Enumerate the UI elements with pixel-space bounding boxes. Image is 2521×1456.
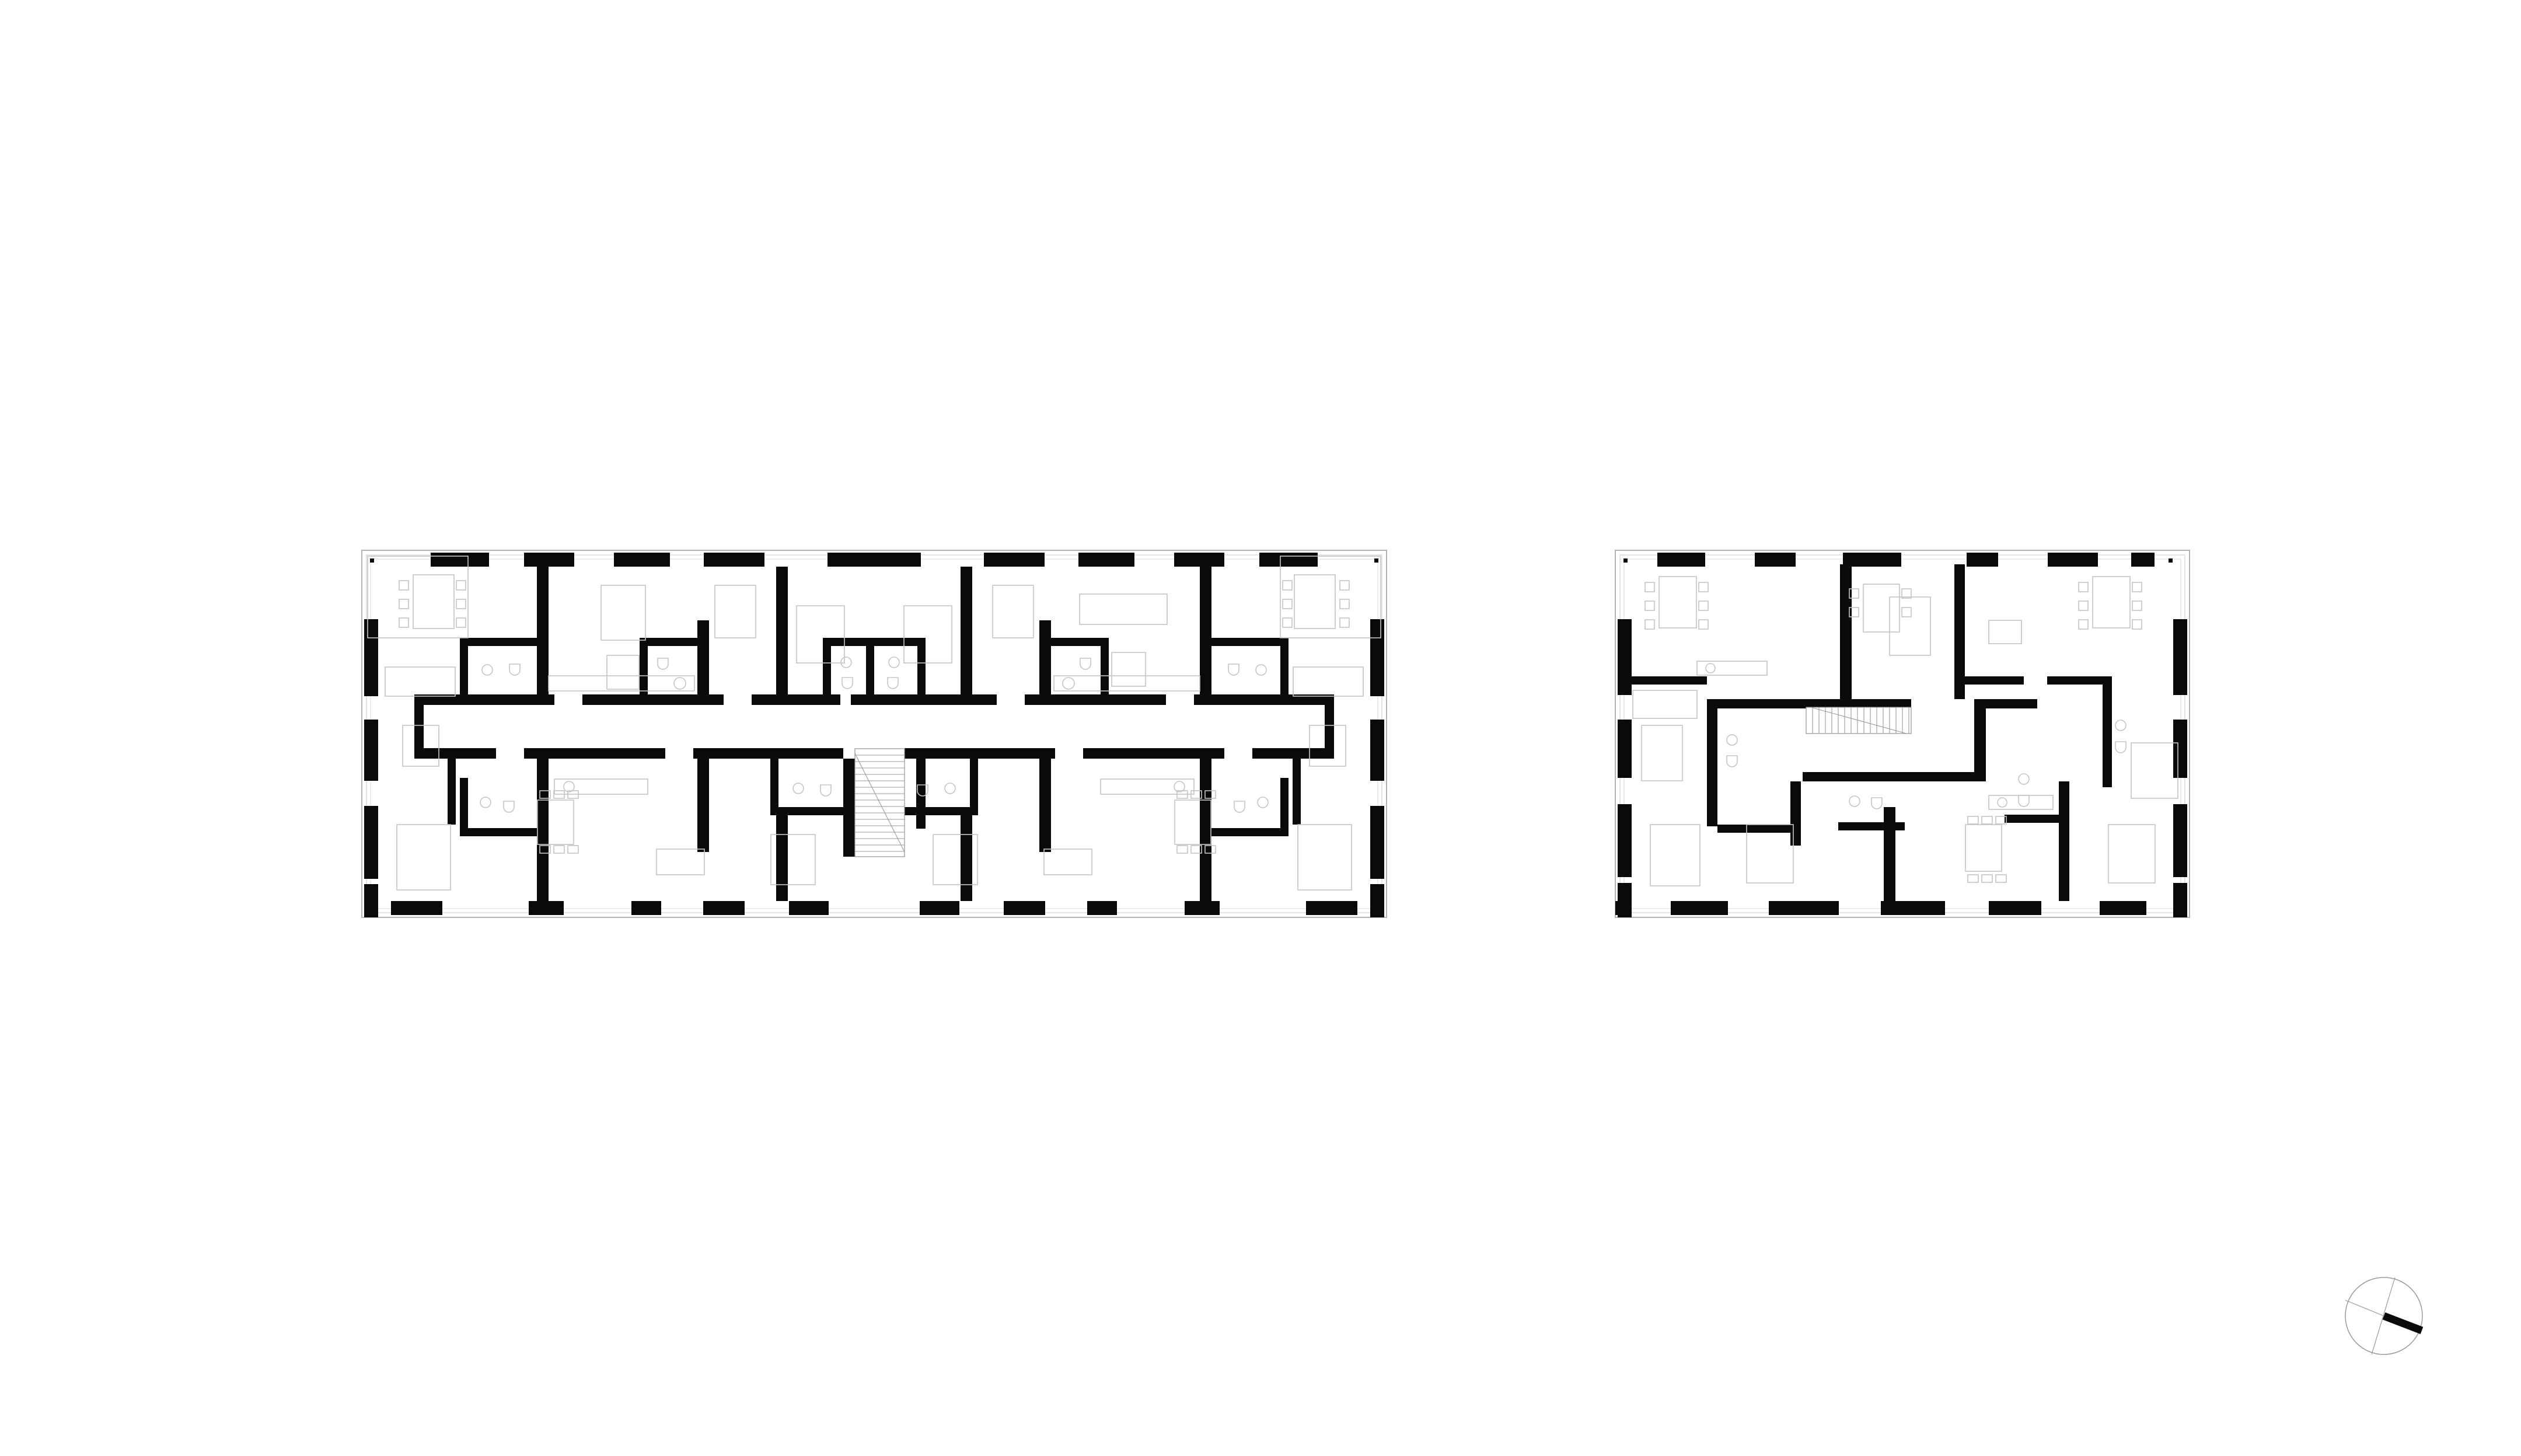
wall-segment [1101, 646, 1109, 694]
wall-segment [1974, 699, 1986, 781]
wall-segment [1840, 564, 1852, 699]
wall-segment [2005, 815, 2063, 823]
wall-segment [460, 638, 537, 646]
compass-tail-line [2345, 1300, 2384, 1316]
perimeter-pier [1671, 901, 1728, 915]
architectural-drawing-canvas [0, 0, 2521, 1456]
wall-segment [1211, 828, 1289, 836]
facade-outline [362, 550, 1387, 917]
wall-segment [1280, 778, 1289, 836]
wall-segment [524, 748, 665, 759]
staircase [1806, 707, 1911, 734]
perimeter-pier [1755, 553, 1796, 567]
wall-segment [460, 828, 537, 836]
wall-segment [1707, 708, 1717, 826]
north-pointer-icon [2384, 1316, 2422, 1331]
perimeter-pier [2173, 804, 2187, 877]
wall-segment [1717, 825, 1790, 833]
perimeter-pier [1174, 553, 1224, 567]
wall-segment [414, 694, 424, 759]
corner-marker-dot [2169, 558, 2173, 563]
perimeter-pier [1370, 884, 1384, 917]
corner-marker-dot [1374, 558, 1378, 563]
wall-segment [1293, 759, 1301, 825]
wall-segment [1790, 781, 1801, 846]
wall-segment [1039, 759, 1051, 852]
wall-segment [460, 778, 468, 836]
corner-marker-dot [1623, 558, 1628, 563]
perimeter-pier [984, 553, 1045, 567]
perimeter-pier [364, 884, 378, 917]
wall-segment [961, 567, 972, 694]
wall-segment [1252, 748, 1334, 759]
perimeter-pier [1657, 553, 1705, 567]
perimeter-pier [827, 553, 921, 567]
wall-segment [1977, 699, 2037, 708]
wall-segment [1200, 759, 1211, 901]
perimeter-pier [631, 901, 661, 915]
perimeter-pier [1078, 553, 1134, 567]
wall-segment [2103, 676, 2112, 787]
wall-segment [1884, 807, 1895, 901]
wall-segment [2059, 781, 2069, 901]
wall-segment [414, 748, 496, 759]
perimeter-pier [1087, 901, 1117, 915]
wall-segment [776, 807, 788, 901]
perimeter-pier [1004, 901, 1045, 915]
wall-segment [640, 646, 648, 694]
perimeter-pier [2131, 553, 2155, 567]
perimeter-pier [391, 901, 442, 915]
perimeter-pier [1618, 883, 1632, 917]
wall-segment [905, 748, 1055, 759]
wall-segment [1954, 564, 1965, 699]
perimeter-pier [1306, 901, 1357, 915]
floor-plan-left [362, 550, 1387, 917]
perimeter-pier [703, 901, 745, 915]
wall-segment [1838, 822, 1905, 830]
perimeter-pier [2173, 883, 2187, 917]
wall-segment [1629, 676, 1707, 685]
wall-segment [1965, 676, 2024, 685]
perimeter-pier [2100, 901, 2146, 915]
perimeter-pier [431, 553, 489, 567]
wall-segment [752, 694, 840, 705]
wall-segment [916, 759, 926, 829]
perimeter-pier [2173, 619, 2187, 695]
perimeter-pier [1881, 901, 1945, 915]
perimeter-pier [529, 901, 564, 915]
perimeter-pier [1618, 720, 1632, 778]
wall-segment [1025, 694, 1166, 705]
wall-segment [866, 646, 874, 694]
wall-segment [1083, 748, 1224, 759]
wall-segment [1211, 638, 1289, 646]
perimeter-pier [1989, 901, 2041, 915]
wall-segment [770, 807, 855, 815]
wall-segment [1325, 694, 1334, 759]
wall-segment [448, 759, 456, 825]
perimeter-pier [364, 720, 378, 781]
staircase [855, 749, 905, 857]
perimeter-pier [1259, 553, 1318, 567]
wall-segment [917, 646, 926, 694]
wall-segment [1043, 638, 1109, 646]
wall-segment [1200, 567, 1211, 694]
perimeter-pier [1769, 901, 1839, 915]
wall-segment [1803, 772, 1974, 781]
perimeter-pier [1370, 619, 1384, 696]
wall-segment [776, 567, 788, 694]
perimeter-pier [1370, 720, 1384, 781]
wall-segment [693, 748, 843, 759]
wall-segment [770, 759, 778, 815]
wall-segment [640, 638, 706, 646]
perimeter-pier [2048, 553, 2098, 567]
wall-segment [823, 638, 926, 646]
wall-segment [460, 646, 468, 694]
floor-plan-right [1615, 550, 2190, 917]
perimeter-pier [614, 553, 670, 567]
perimeter-pier [364, 619, 378, 696]
perimeter-pier [704, 553, 764, 567]
wall-segment [970, 759, 978, 815]
wall-segment [697, 759, 709, 852]
wall-segment [1280, 646, 1289, 694]
wall-segment [961, 807, 972, 901]
wall-segment [823, 646, 831, 694]
wall-segment [697, 620, 709, 694]
wall-segment [537, 759, 549, 901]
perimeter-pier [2173, 720, 2187, 778]
perimeter-pier [789, 901, 829, 915]
perimeter-pier [1370, 806, 1384, 879]
perimeter-pier [920, 901, 959, 915]
perimeter-pier [1618, 804, 1632, 877]
perimeter-pier [524, 553, 574, 567]
perimeter-pier [1967, 553, 1998, 567]
wall-segment [893, 807, 978, 815]
wall-segment [1039, 620, 1051, 694]
north-arrow-compass [2345, 1277, 2422, 1354]
perimeter-pier [364, 806, 378, 879]
wall-segment [537, 567, 549, 694]
corner-marker-dot [370, 558, 374, 563]
wall-segment [2047, 676, 2103, 685]
wall-segment [851, 694, 997, 705]
wall-segment [582, 694, 724, 705]
perimeter-pier [1185, 901, 1220, 915]
